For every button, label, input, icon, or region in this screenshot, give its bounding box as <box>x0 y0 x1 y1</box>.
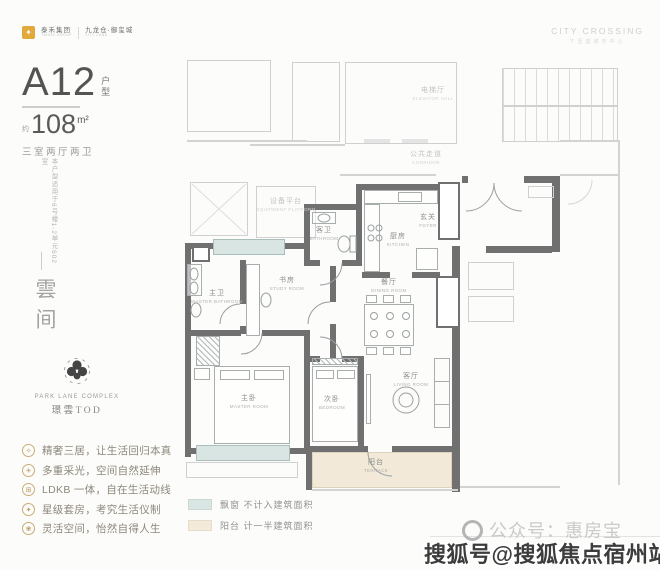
faded-outline <box>187 140 307 142</box>
toilet <box>191 303 201 317</box>
pillow <box>254 370 284 380</box>
pillow <box>337 370 355 379</box>
wall-segment <box>304 204 360 210</box>
room-name-en: MASTER BATHROOM <box>191 299 243 305</box>
balcony <box>312 452 452 488</box>
faded-outline <box>618 140 620 485</box>
elevator-hall <box>345 62 457 144</box>
shoe-cabinet <box>528 186 554 198</box>
wall-segment <box>330 324 336 358</box>
faded-outline <box>560 140 620 142</box>
faded-outline <box>190 182 248 236</box>
room-label: 餐厅DINING ROOM <box>371 279 406 293</box>
tv-console <box>366 374 371 424</box>
room-label: 厨房KITCHEN <box>387 233 410 247</box>
dining-chair <box>400 295 411 303</box>
bath-vanity <box>312 212 336 224</box>
wall-segment <box>304 204 310 266</box>
room-name-en: DINING ROOM <box>371 288 406 294</box>
dining-table <box>364 304 414 346</box>
faded-outline <box>468 296 514 322</box>
washer-unit <box>192 246 210 262</box>
wall-segment <box>356 184 362 266</box>
wardrobe <box>196 336 220 366</box>
door-arc <box>220 304 240 324</box>
toilet <box>338 236 350 252</box>
pillow <box>316 370 334 379</box>
room-name-cn: 厨房 <box>387 233 410 242</box>
neighbor-door-arc <box>568 180 592 204</box>
room-label: 书房STUDY ROOM <box>270 277 304 291</box>
sofa <box>434 358 450 428</box>
bay-window <box>213 239 285 255</box>
room-name-cn: 餐厅 <box>371 279 406 288</box>
service-shaft <box>436 276 460 328</box>
faded-outline <box>250 144 345 146</box>
nightstand <box>194 368 210 380</box>
watermark: 搜狐号@搜狐焦点宿州站 <box>424 537 660 569</box>
door-arc <box>241 333 262 354</box>
room-name-cn: 公共走道 <box>410 151 442 160</box>
desk-chair <box>261 293 271 307</box>
wall-segment <box>304 330 310 452</box>
faded-outline <box>468 262 514 290</box>
faded-outline <box>292 62 340 142</box>
dining-chair <box>366 347 377 355</box>
faded-outline <box>402 139 428 143</box>
desk <box>246 264 260 336</box>
faded-outline <box>460 486 560 488</box>
fridge <box>416 248 438 270</box>
room-name-en: LIVING ROOM <box>394 382 428 388</box>
wall-segment <box>358 356 364 452</box>
wall-segment <box>262 330 310 336</box>
rug <box>399 393 413 407</box>
wall-segment <box>362 272 390 278</box>
wall-segment <box>330 266 336 302</box>
dining-chair <box>383 295 394 303</box>
kitchen-counter <box>364 204 380 272</box>
room-name-cn: 书房 <box>270 277 304 286</box>
entry-door-arc <box>466 183 494 211</box>
faded-outline <box>187 60 271 132</box>
wall-segment <box>462 176 468 183</box>
room-name-cn: 客厅 <box>394 373 428 382</box>
faded-outline <box>312 489 458 491</box>
faded-outline <box>340 174 436 176</box>
dining-chair <box>400 347 411 355</box>
bay-window <box>196 445 290 461</box>
room-label: 客厅LIVING ROOM <box>394 373 428 387</box>
pillow <box>220 370 250 380</box>
room-name-en: FOYER <box>419 223 437 229</box>
room-name-cn: 玄关 <box>419 214 437 223</box>
dining-chair <box>383 347 394 355</box>
room-name-en: STUDY ROOM <box>270 286 304 292</box>
room-name-en: KITCHEN <box>387 242 410 248</box>
rug <box>393 387 419 413</box>
wall-segment <box>342 260 362 266</box>
stairwell <box>502 68 618 142</box>
room-label: 玄关FOYER <box>419 214 437 228</box>
floorplan: 电梯厅ELEVATOR HALL公共走道CORRIDOR设备平台EQUIPMEN… <box>0 0 660 570</box>
faded-outline <box>560 174 620 176</box>
room-name-en: CORRIDOR <box>410 160 442 166</box>
door-arc <box>308 302 330 324</box>
window-ledge <box>186 462 298 478</box>
bath-vanity <box>187 264 202 296</box>
service-shaft <box>438 182 460 240</box>
poster: ✦ 泰禾集团 TAHOE GROUP 九龙仓·御玺城 CITY LAND CIT… <box>0 0 660 570</box>
kitchen-sink <box>398 192 422 202</box>
wall-segment <box>304 260 320 266</box>
dining-chair <box>366 295 377 303</box>
wall-segment <box>486 246 552 253</box>
headboard <box>312 358 358 365</box>
entry-door-arc <box>494 183 522 211</box>
room-label: 公共走道CORRIDOR <box>410 151 442 165</box>
faded-outline <box>364 139 390 143</box>
